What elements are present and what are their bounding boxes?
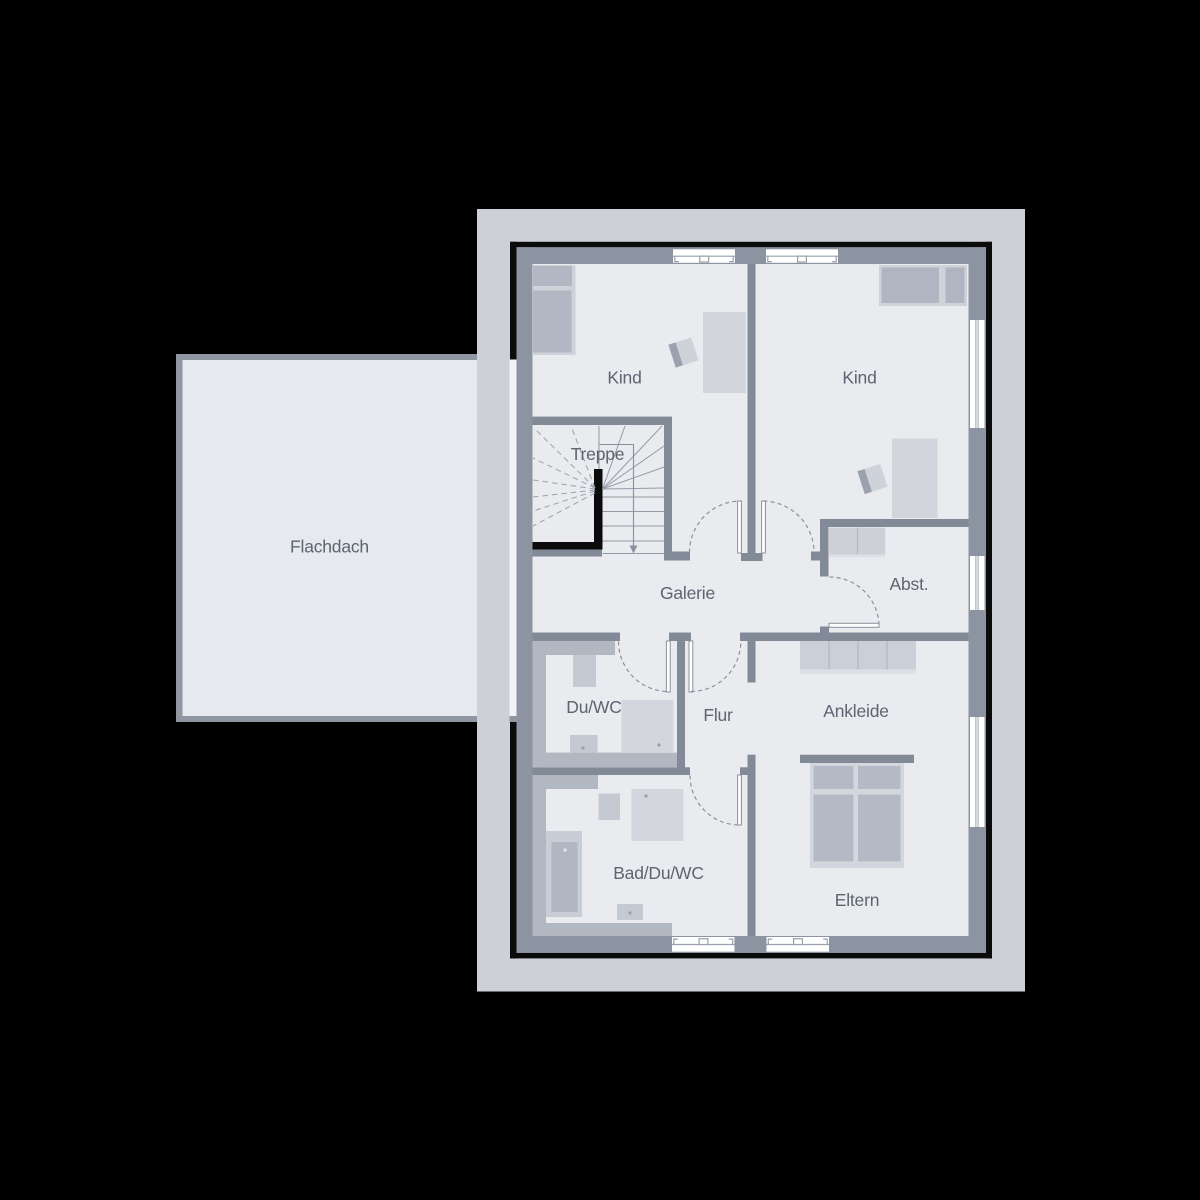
svg-text:Eltern: Eltern <box>835 890 880 910</box>
svg-text:Du/WC: Du/WC <box>566 697 621 717</box>
svg-text:Abst.: Abst. <box>890 574 929 594</box>
svg-text:Flachdach: Flachdach <box>290 537 369 557</box>
svg-text:Kind: Kind <box>607 368 641 388</box>
svg-text:Galerie: Galerie <box>660 583 715 603</box>
svg-text:Bad/Du/WC: Bad/Du/WC <box>613 863 704 883</box>
svg-text:Flur: Flur <box>703 705 733 725</box>
svg-text:Ankleide: Ankleide <box>823 701 889 721</box>
svg-text:Treppe: Treppe <box>571 444 625 464</box>
svg-text:Kind: Kind <box>842 368 876 388</box>
